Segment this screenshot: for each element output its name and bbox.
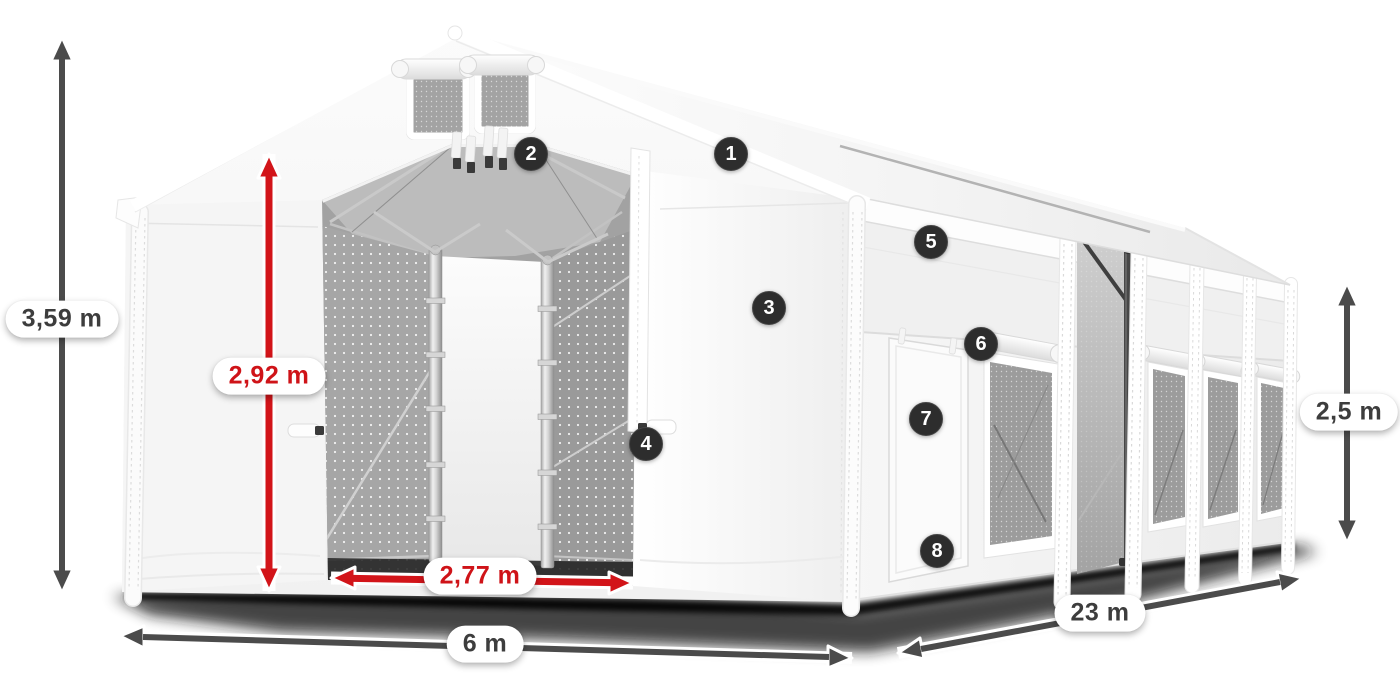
dimension-label-tent-length: 23 m (1055, 595, 1146, 632)
door-frame-post (426, 245, 445, 562)
callout-8: 8 (920, 534, 954, 568)
callout-2: 2 (514, 137, 548, 171)
side-open-bay (1077, 232, 1134, 574)
door-handle (288, 424, 324, 437)
door-frame-post (538, 255, 557, 568)
peak-cap (448, 26, 462, 40)
dimension-label-entrance-width: 2,77 m (424, 558, 537, 595)
front-left-wall (122, 200, 326, 598)
callout-5: 5 (914, 225, 948, 259)
callout-6: 6 (964, 327, 998, 361)
callout-7: 7 (909, 402, 943, 436)
front-entrance-interior (300, 130, 650, 600)
dimension-label-tent-width: 6 m (447, 626, 524, 663)
window-rolled-cover (460, 55, 545, 75)
callout-3: 3 (752, 291, 786, 325)
front-right-door-panel (628, 148, 858, 602)
callout-1: 1 (714, 137, 748, 171)
dimension-label-entrance-height: 2,92 m (213, 358, 326, 395)
see-through-opening (435, 256, 545, 566)
front-corner-strap (847, 204, 862, 608)
dimension-label-side-wall-height: 2,5 m (1300, 394, 1398, 431)
tent-illustration (0, 0, 1400, 700)
dimension-label-total-height: 3,59 m (6, 301, 119, 338)
callout-4: 4 (629, 427, 663, 461)
tent-dimensions-diagram: 3,59 m 2,92 m 2,77 m 6 m 23 m 2,5 m 1 2 … (0, 0, 1400, 700)
